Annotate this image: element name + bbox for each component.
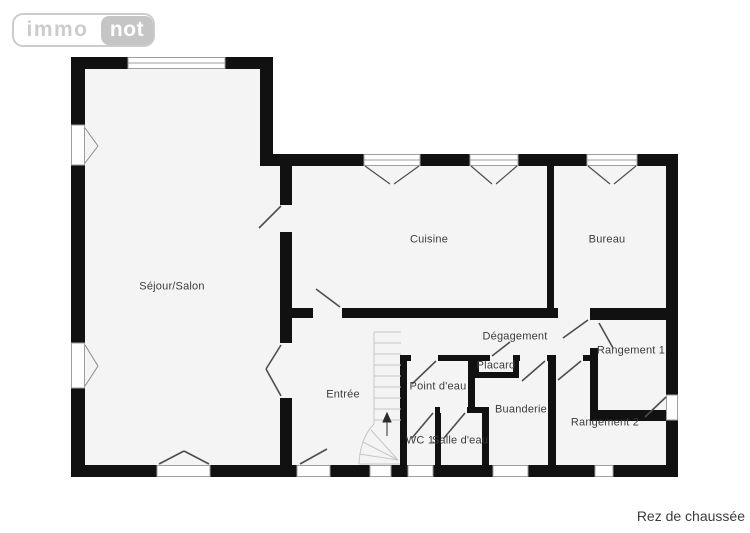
window-icon	[370, 466, 391, 477]
room-label-point-deau: Point d'eau	[410, 382, 467, 393]
window-icon	[493, 466, 528, 477]
door-gap	[297, 466, 330, 477]
door-gap	[157, 466, 210, 477]
room-floors	[85, 69, 666, 465]
floorplan-canvas: immo not	[0, 0, 750, 533]
room-label-degagement: Dégagement	[483, 332, 548, 343]
window-icon	[595, 466, 613, 477]
door-gap	[667, 395, 678, 420]
window-icon	[72, 343, 85, 388]
room-label-wc-1: WC 1	[406, 436, 434, 447]
window-icon	[408, 466, 433, 477]
room-label-rangement-1: Rangement 1	[597, 346, 665, 357]
room-label-buanderie: Buanderie	[495, 405, 547, 416]
room-label-placard: Placard	[477, 361, 516, 372]
room-label-cuisine: Cuisine	[410, 235, 448, 246]
floorplan-drawing	[0, 0, 750, 533]
room-label-bureau: Bureau	[589, 235, 626, 246]
window-icon	[72, 125, 85, 165]
room-label-sejour-salon: Séjour/Salon	[139, 282, 204, 293]
room-label-rangement-2: Rangement 2	[571, 418, 639, 429]
room-label-entree: Entrée	[326, 390, 360, 401]
room-label-salle-deau: Salle d'eau	[432, 436, 488, 447]
floor-caption: Rez de chaussée	[545, 508, 745, 524]
